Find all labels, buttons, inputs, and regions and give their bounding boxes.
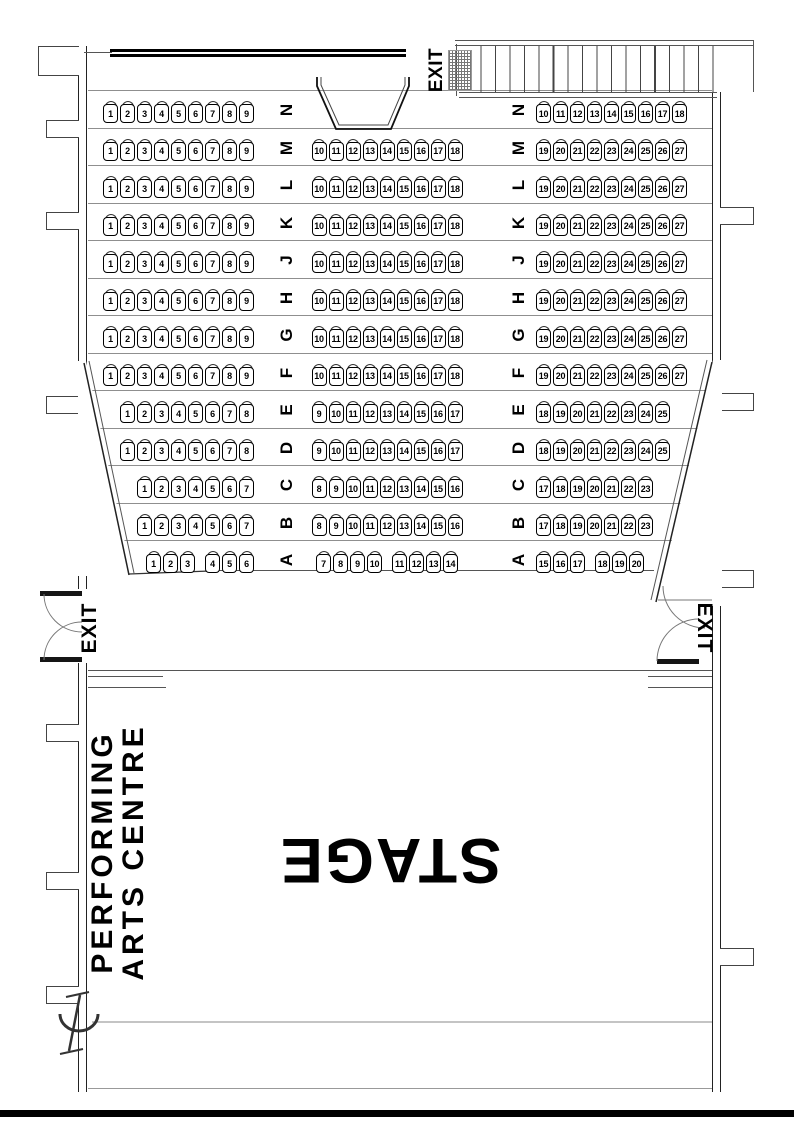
seat-L7: 7 bbox=[205, 179, 220, 198]
seat-G22: 22 bbox=[587, 329, 602, 348]
seat-K24: 24 bbox=[621, 217, 636, 236]
seat-B23: 23 bbox=[638, 517, 653, 536]
seat-group: 123456789 bbox=[103, 179, 254, 198]
seat-N5: 5 bbox=[171, 104, 186, 123]
seat-group: 101112131415161718 bbox=[312, 329, 463, 348]
seat-block-mid: 101112131415161718 bbox=[304, 285, 470, 311]
seat-L20: 20 bbox=[553, 179, 568, 198]
seat-E12: 12 bbox=[363, 404, 378, 423]
seat-N9: 9 bbox=[239, 104, 254, 123]
seat-J17: 17 bbox=[431, 254, 446, 273]
seat-D22: 22 bbox=[604, 442, 619, 461]
seat-row-A: 1234567891011121314151617181920AA bbox=[0, 547, 794, 573]
seat-N11: 11 bbox=[553, 104, 568, 123]
seat-M7: 7 bbox=[205, 142, 220, 161]
seat-K10: 10 bbox=[312, 217, 327, 236]
seat-M16: 16 bbox=[414, 142, 429, 161]
seat-block-mid: 7891011121314 bbox=[304, 547, 470, 573]
seat-H20: 20 bbox=[553, 292, 568, 311]
seat-F25: 25 bbox=[638, 367, 653, 386]
seat-G18: 18 bbox=[448, 329, 463, 348]
seat-G12: 12 bbox=[346, 329, 361, 348]
seat-F12: 12 bbox=[346, 367, 361, 386]
seat-group: 101112131415161718 bbox=[312, 254, 463, 273]
seat-block-right: 1819202122232425 bbox=[536, 435, 698, 461]
seat-C23: 23 bbox=[638, 479, 653, 498]
seat-M13: 13 bbox=[363, 142, 378, 161]
seat-C10: 10 bbox=[346, 479, 361, 498]
seat-F17: 17 bbox=[431, 367, 446, 386]
seat-H10: 10 bbox=[312, 292, 327, 311]
seat-block-right: 192021222324252627 bbox=[536, 360, 698, 386]
seat-K17: 17 bbox=[431, 217, 446, 236]
seat-B13: 13 bbox=[397, 517, 412, 536]
seat-group: 123 bbox=[146, 554, 195, 573]
seat-B22: 22 bbox=[621, 517, 636, 536]
seat-block-left: 123456789 bbox=[92, 285, 254, 311]
seat-M8: 8 bbox=[222, 142, 237, 161]
seat-A9: 9 bbox=[350, 554, 365, 573]
seat-N18: 18 bbox=[672, 104, 687, 123]
seat-L21: 21 bbox=[570, 179, 585, 198]
seat-E11: 11 bbox=[346, 404, 361, 423]
seat-G5: 5 bbox=[171, 329, 186, 348]
venue-name: PERFORMING ARTS CENTRE bbox=[87, 702, 149, 1002]
seat-D11: 11 bbox=[346, 442, 361, 461]
exit-label-stairs: EXIT bbox=[426, 25, 448, 115]
seat-group: 12345678 bbox=[120, 442, 254, 461]
seat-G21: 21 bbox=[570, 329, 585, 348]
seat-B11: 11 bbox=[363, 517, 378, 536]
seat-E20: 20 bbox=[570, 404, 585, 423]
row-label-C-right: C bbox=[506, 470, 532, 500]
seat-H26: 26 bbox=[655, 292, 670, 311]
row-label-B-left: B bbox=[274, 508, 300, 538]
seat-E25: 25 bbox=[655, 404, 670, 423]
seat-N1: 1 bbox=[103, 104, 118, 123]
seat-E1: 1 bbox=[120, 404, 135, 423]
seat-M12: 12 bbox=[346, 142, 361, 161]
seat-H24: 24 bbox=[621, 292, 636, 311]
seat-group: 123456789 bbox=[103, 217, 254, 236]
seat-D10: 10 bbox=[329, 442, 344, 461]
seat-D17: 17 bbox=[448, 442, 463, 461]
row-label-G-left: G bbox=[274, 320, 300, 350]
seat-group: 151617 bbox=[536, 554, 585, 573]
seat-block-right: 192021222324252627 bbox=[536, 172, 698, 198]
seat-N10: 10 bbox=[536, 104, 551, 123]
seat-block-right: 192021222324252627 bbox=[536, 135, 698, 161]
seat-K4: 4 bbox=[154, 217, 169, 236]
seat-F3: 3 bbox=[137, 367, 152, 386]
seat-H1: 1 bbox=[103, 292, 118, 311]
row-label-C-left: C bbox=[274, 470, 300, 500]
seat-B12: 12 bbox=[380, 517, 395, 536]
seat-B9: 9 bbox=[329, 517, 344, 536]
seat-N17: 17 bbox=[655, 104, 670, 123]
seat-E4: 4 bbox=[171, 404, 186, 423]
seat-A12: 12 bbox=[409, 554, 424, 573]
seat-group: 192021222324252627 bbox=[536, 292, 687, 311]
seat-A4: 4 bbox=[205, 554, 220, 573]
seat-H7: 7 bbox=[205, 292, 220, 311]
seat-group: 192021222324252627 bbox=[536, 142, 687, 161]
seat-D21: 21 bbox=[587, 442, 602, 461]
row-label-K-right: K bbox=[506, 208, 532, 238]
seat-block-mid: 101112131415161718 bbox=[304, 247, 470, 273]
seat-block-left: 123456789 bbox=[92, 97, 254, 123]
seat-group: 192021222324252627 bbox=[536, 367, 687, 386]
stage-label: STAGE bbox=[180, 815, 600, 905]
seat-group: 11121314 bbox=[392, 554, 458, 573]
seat-row-C: 1234567891011121314151617181920212223CC bbox=[0, 472, 794, 498]
row-label-H-left: H bbox=[274, 283, 300, 313]
seat-G6: 6 bbox=[188, 329, 203, 348]
seat-J22: 22 bbox=[587, 254, 602, 273]
seat-D3: 3 bbox=[154, 442, 169, 461]
seat-J27: 27 bbox=[672, 254, 687, 273]
seat-block-right: 101112131415161718 bbox=[536, 97, 698, 123]
seat-J21: 21 bbox=[570, 254, 585, 273]
seat-K9: 9 bbox=[239, 217, 254, 236]
seat-H5: 5 bbox=[171, 292, 186, 311]
row-label-K-left: K bbox=[274, 208, 300, 238]
seat-B19: 19 bbox=[570, 517, 585, 536]
row-label-D-left: D bbox=[274, 433, 300, 463]
seat-B20: 20 bbox=[587, 517, 602, 536]
seat-A19: 19 bbox=[612, 554, 627, 573]
seat-F16: 16 bbox=[414, 367, 429, 386]
seat-M11: 11 bbox=[329, 142, 344, 161]
seat-block-right: 17181920212223 bbox=[536, 510, 698, 536]
seat-G9: 9 bbox=[239, 329, 254, 348]
seat-K18: 18 bbox=[448, 217, 463, 236]
seat-E24: 24 bbox=[638, 404, 653, 423]
seat-G17: 17 bbox=[431, 329, 446, 348]
seat-block-left: 123456789 bbox=[92, 172, 254, 198]
seat-J23: 23 bbox=[604, 254, 619, 273]
seat-F9: 9 bbox=[239, 367, 254, 386]
seat-block-right: 151617181920 bbox=[536, 547, 698, 573]
seat-H15: 15 bbox=[397, 292, 412, 311]
seat-J4: 4 bbox=[154, 254, 169, 273]
seat-D6: 6 bbox=[205, 442, 220, 461]
seat-L24: 24 bbox=[621, 179, 636, 198]
seat-E8: 8 bbox=[239, 404, 254, 423]
seat-group: 91011121314151617 bbox=[312, 442, 463, 461]
seat-group: 101112131415161718 bbox=[312, 217, 463, 236]
exit-label-left: EXIT bbox=[78, 573, 102, 683]
seat-L3: 3 bbox=[137, 179, 152, 198]
seat-C21: 21 bbox=[604, 479, 619, 498]
seat-G15: 15 bbox=[397, 329, 412, 348]
seat-C11: 11 bbox=[363, 479, 378, 498]
seat-L13: 13 bbox=[363, 179, 378, 198]
seat-H12: 12 bbox=[346, 292, 361, 311]
seat-H2: 2 bbox=[120, 292, 135, 311]
seat-B17: 17 bbox=[536, 517, 551, 536]
seat-group: 17181920212223 bbox=[536, 479, 653, 498]
seat-M18: 18 bbox=[448, 142, 463, 161]
seat-C22: 22 bbox=[621, 479, 636, 498]
seat-group: 1819202122232425 bbox=[536, 442, 670, 461]
seat-K14: 14 bbox=[380, 217, 395, 236]
seat-J15: 15 bbox=[397, 254, 412, 273]
seat-E17: 17 bbox=[448, 404, 463, 423]
seat-C8: 8 bbox=[312, 479, 327, 498]
seat-group: 192021222324252627 bbox=[536, 217, 687, 236]
seat-J5: 5 bbox=[171, 254, 186, 273]
seat-M9: 9 bbox=[239, 142, 254, 161]
seat-H22: 22 bbox=[587, 292, 602, 311]
seat-block-mid: 101112131415161718 bbox=[304, 135, 470, 161]
seat-D13: 13 bbox=[380, 442, 395, 461]
row-label-A-right: A bbox=[506, 545, 532, 575]
seat-group: 192021222324252627 bbox=[536, 179, 687, 198]
seat-G16: 16 bbox=[414, 329, 429, 348]
seat-M25: 25 bbox=[638, 142, 653, 161]
seat-D5: 5 bbox=[188, 442, 203, 461]
seat-J13: 13 bbox=[363, 254, 378, 273]
seat-E3: 3 bbox=[154, 404, 169, 423]
seat-block-mid: 8910111213141516 bbox=[304, 510, 470, 536]
seat-D14: 14 bbox=[397, 442, 412, 461]
seat-D2: 2 bbox=[137, 442, 152, 461]
row-label-F-right: F bbox=[506, 358, 532, 388]
seat-K8: 8 bbox=[222, 217, 237, 236]
seat-F14: 14 bbox=[380, 367, 395, 386]
seat-group: 8910111213141516 bbox=[312, 517, 463, 536]
seat-C1: 1 bbox=[137, 479, 152, 498]
seat-A10: 10 bbox=[367, 554, 382, 573]
seat-K6: 6 bbox=[188, 217, 203, 236]
seat-A7: 7 bbox=[316, 554, 331, 573]
seat-K2: 2 bbox=[120, 217, 135, 236]
seat-B7: 7 bbox=[239, 517, 254, 536]
seat-M26: 26 bbox=[655, 142, 670, 161]
seat-K22: 22 bbox=[587, 217, 602, 236]
row-label-L-left: L bbox=[274, 170, 300, 200]
seat-L26: 26 bbox=[655, 179, 670, 198]
seat-G19: 19 bbox=[536, 329, 551, 348]
seat-J18: 18 bbox=[448, 254, 463, 273]
seat-F22: 22 bbox=[587, 367, 602, 386]
row-label-L-right: L bbox=[506, 170, 532, 200]
seat-M14: 14 bbox=[380, 142, 395, 161]
seat-A20: 20 bbox=[629, 554, 644, 573]
seat-K19: 19 bbox=[536, 217, 551, 236]
seat-D23: 23 bbox=[621, 442, 636, 461]
seat-N14: 14 bbox=[604, 104, 619, 123]
seat-group: 123456789 bbox=[103, 104, 254, 123]
seat-E7: 7 bbox=[222, 404, 237, 423]
seat-H23: 23 bbox=[604, 292, 619, 311]
seat-row-F: 1234567891011121314151617181920212223242… bbox=[0, 360, 794, 386]
seat-A1: 1 bbox=[146, 554, 161, 573]
seat-L5: 5 bbox=[171, 179, 186, 198]
seat-block-mid: 91011121314151617 bbox=[304, 397, 470, 423]
seat-block-right: 192021222324252627 bbox=[536, 285, 698, 311]
seat-F1: 1 bbox=[103, 367, 118, 386]
seat-A6: 6 bbox=[239, 554, 254, 573]
seat-D4: 4 bbox=[171, 442, 186, 461]
seat-D8: 8 bbox=[239, 442, 254, 461]
seat-N3: 3 bbox=[137, 104, 152, 123]
seat-D1: 1 bbox=[120, 442, 135, 461]
seat-F20: 20 bbox=[553, 367, 568, 386]
seat-block-left: 123456 bbox=[92, 547, 254, 573]
seat-B5: 5 bbox=[205, 517, 220, 536]
seat-row-L: 1234567891011121314151617181920212223242… bbox=[0, 172, 794, 198]
seat-K26: 26 bbox=[655, 217, 670, 236]
seat-B1: 1 bbox=[137, 517, 152, 536]
seat-block-left: 123456789 bbox=[92, 322, 254, 348]
seat-B2: 2 bbox=[154, 517, 169, 536]
exit-label-right: EXIT bbox=[692, 573, 716, 683]
seat-F27: 27 bbox=[672, 367, 687, 386]
seat-L17: 17 bbox=[431, 179, 446, 198]
seat-N2: 2 bbox=[120, 104, 135, 123]
seat-E2: 2 bbox=[137, 404, 152, 423]
seat-row-E: 1234567891011121314151617181920212223242… bbox=[0, 397, 794, 423]
row-label-E-right: E bbox=[506, 395, 532, 425]
seat-N6: 6 bbox=[188, 104, 203, 123]
seat-G7: 7 bbox=[205, 329, 220, 348]
seat-L11: 11 bbox=[329, 179, 344, 198]
row-label-N-left: N bbox=[274, 95, 300, 125]
seat-G23: 23 bbox=[604, 329, 619, 348]
seat-C16: 16 bbox=[448, 479, 463, 498]
seat-J1: 1 bbox=[103, 254, 118, 273]
seat-A8: 8 bbox=[333, 554, 348, 573]
seat-K7: 7 bbox=[205, 217, 220, 236]
seat-C17: 17 bbox=[536, 479, 551, 498]
seat-K21: 21 bbox=[570, 217, 585, 236]
seat-block-left: 123456789 bbox=[92, 210, 254, 236]
seat-group: 123456789 bbox=[103, 367, 254, 386]
seat-row-N: 123456789101112131415161718NN bbox=[0, 97, 794, 123]
seat-K5: 5 bbox=[171, 217, 186, 236]
seat-K27: 27 bbox=[672, 217, 687, 236]
seat-M27: 27 bbox=[672, 142, 687, 161]
seat-N16: 16 bbox=[638, 104, 653, 123]
seat-H16: 16 bbox=[414, 292, 429, 311]
seat-group: 91011121314151617 bbox=[312, 404, 463, 423]
seat-block-left: 123456789 bbox=[92, 360, 254, 386]
seat-E5: 5 bbox=[188, 404, 203, 423]
seat-N8: 8 bbox=[222, 104, 237, 123]
seat-M24: 24 bbox=[621, 142, 636, 161]
seat-N7: 7 bbox=[205, 104, 220, 123]
seat-L14: 14 bbox=[380, 179, 395, 198]
seat-C7: 7 bbox=[239, 479, 254, 498]
seat-block-left: 1234567 bbox=[92, 472, 254, 498]
seat-M19: 19 bbox=[536, 142, 551, 161]
seat-group: 123456789 bbox=[103, 329, 254, 348]
seat-D25: 25 bbox=[655, 442, 670, 461]
seat-E6: 6 bbox=[205, 404, 220, 423]
seat-K13: 13 bbox=[363, 217, 378, 236]
seat-E21: 21 bbox=[587, 404, 602, 423]
row-label-G-right: G bbox=[506, 320, 532, 350]
seat-C3: 3 bbox=[171, 479, 186, 498]
seat-K23: 23 bbox=[604, 217, 619, 236]
seat-F26: 26 bbox=[655, 367, 670, 386]
seat-group: 12345678 bbox=[120, 404, 254, 423]
seat-A18: 18 bbox=[595, 554, 610, 573]
seat-D18: 18 bbox=[536, 442, 551, 461]
seat-J3: 3 bbox=[137, 254, 152, 273]
seat-group: 123456789 bbox=[103, 142, 254, 161]
seat-C12: 12 bbox=[380, 479, 395, 498]
seat-L2: 2 bbox=[120, 179, 135, 198]
seat-C2: 2 bbox=[154, 479, 169, 498]
seat-H21: 21 bbox=[570, 292, 585, 311]
seat-group: 101112131415161718 bbox=[536, 104, 687, 123]
seat-B10: 10 bbox=[346, 517, 361, 536]
seat-block-left: 123456789 bbox=[92, 247, 254, 273]
seat-M5: 5 bbox=[171, 142, 186, 161]
seat-group: 8910111213141516 bbox=[312, 479, 463, 498]
seat-group: 192021222324252627 bbox=[536, 329, 687, 348]
seat-F21: 21 bbox=[570, 367, 585, 386]
seat-D7: 7 bbox=[222, 442, 237, 461]
seat-A11: 11 bbox=[392, 554, 407, 573]
seat-F7: 7 bbox=[205, 367, 220, 386]
seat-H25: 25 bbox=[638, 292, 653, 311]
seat-M22: 22 bbox=[587, 142, 602, 161]
seat-A3: 3 bbox=[180, 554, 195, 573]
seat-C20: 20 bbox=[587, 479, 602, 498]
seat-N4: 4 bbox=[154, 104, 169, 123]
seat-block-mid: 91011121314151617 bbox=[304, 435, 470, 461]
seat-K1: 1 bbox=[103, 217, 118, 236]
seat-E10: 10 bbox=[329, 404, 344, 423]
seat-B21: 21 bbox=[604, 517, 619, 536]
seat-H9: 9 bbox=[239, 292, 254, 311]
seat-J16: 16 bbox=[414, 254, 429, 273]
seat-block-mid: 101112131415161718 bbox=[304, 210, 470, 236]
seat-F24: 24 bbox=[621, 367, 636, 386]
seat-group: 1234567 bbox=[137, 479, 254, 498]
seat-J25: 25 bbox=[638, 254, 653, 273]
seat-J9: 9 bbox=[239, 254, 254, 273]
seat-group: 192021222324252627 bbox=[536, 254, 687, 273]
seat-group: 1234567 bbox=[137, 517, 254, 536]
seat-F18: 18 bbox=[448, 367, 463, 386]
row-label-J-right: J bbox=[506, 245, 532, 275]
seat-J10: 10 bbox=[312, 254, 327, 273]
seat-row-G: 1234567891011121314151617181920212223242… bbox=[0, 322, 794, 348]
venue-name-line1: PERFORMING bbox=[87, 702, 118, 1002]
seat-H17: 17 bbox=[431, 292, 446, 311]
seat-block-left: 12345678 bbox=[92, 435, 254, 461]
row-label-H-right: H bbox=[506, 283, 532, 313]
seat-block-right: 192021222324252627 bbox=[536, 322, 698, 348]
seat-J11: 11 bbox=[329, 254, 344, 273]
seat-M2: 2 bbox=[120, 142, 135, 161]
seat-L1: 1 bbox=[103, 179, 118, 198]
seat-M1: 1 bbox=[103, 142, 118, 161]
seat-row-B: 1234567891011121314151617181920212223BB bbox=[0, 510, 794, 536]
seat-C19: 19 bbox=[570, 479, 585, 498]
seat-H8: 8 bbox=[222, 292, 237, 311]
seat-M21: 21 bbox=[570, 142, 585, 161]
seat-K20: 20 bbox=[553, 217, 568, 236]
seat-H3: 3 bbox=[137, 292, 152, 311]
seat-J20: 20 bbox=[553, 254, 568, 273]
seat-L23: 23 bbox=[604, 179, 619, 198]
